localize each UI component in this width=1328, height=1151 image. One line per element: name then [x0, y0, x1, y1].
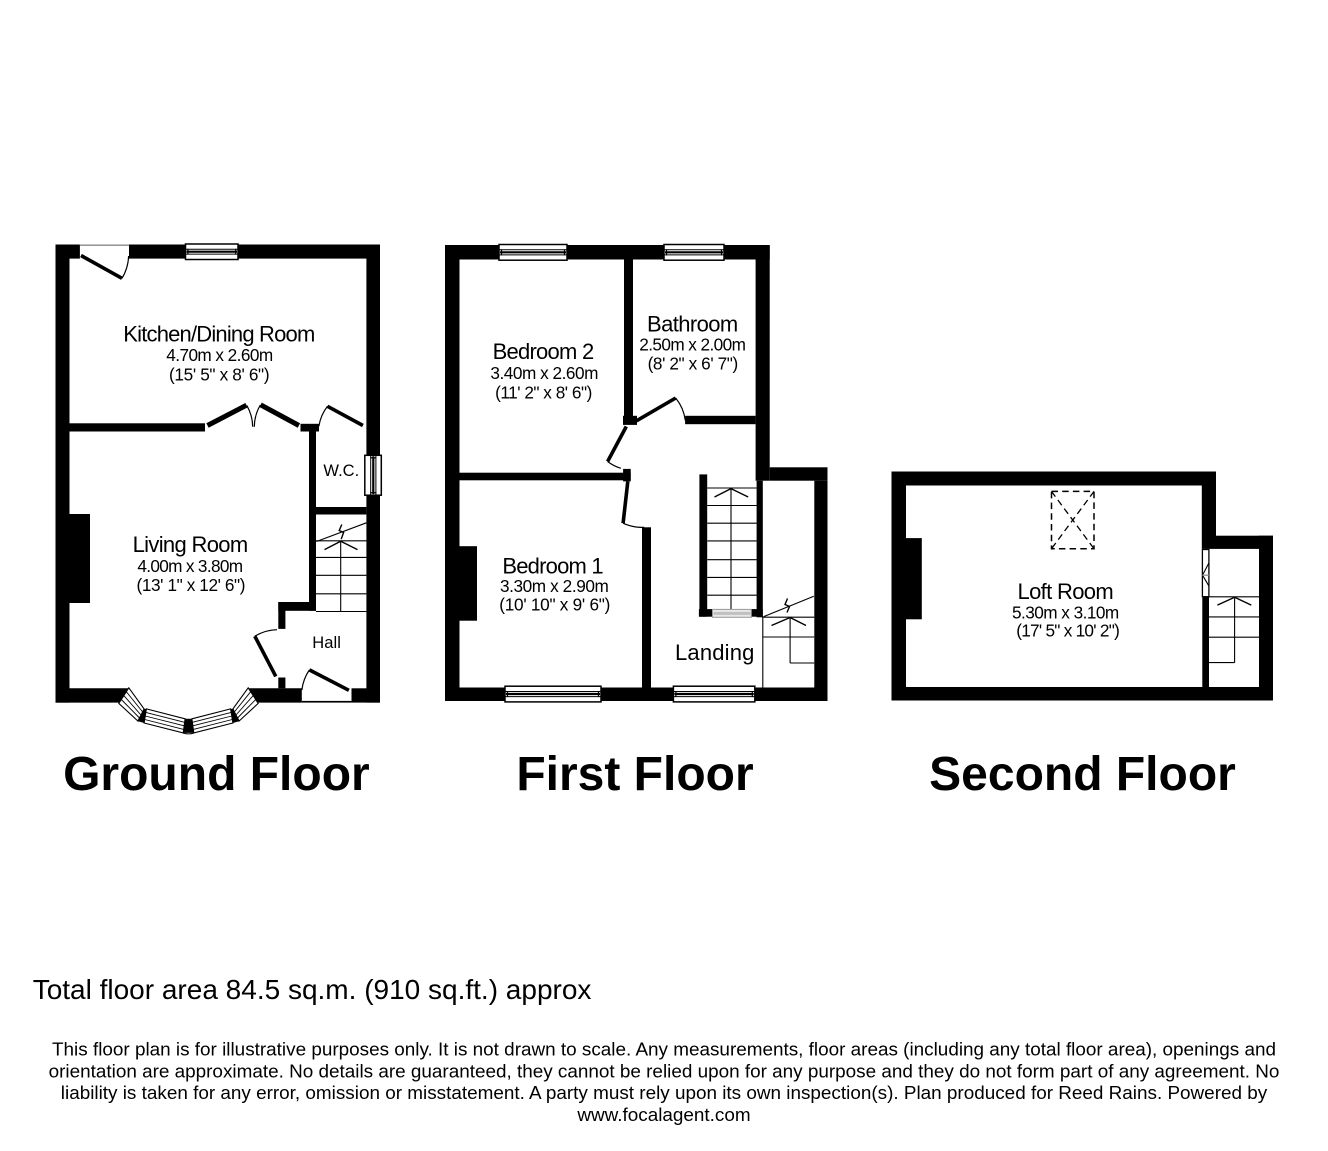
svg-text:Bedroom 1: Bedroom 1 [502, 554, 603, 579]
svg-text:First Floor: First Floor [516, 748, 753, 801]
svg-text:orientation are approximate. N: orientation are approximate. No details … [49, 1061, 1280, 1082]
svg-text:4.00m x 3.80m: 4.00m x 3.80m [137, 556, 243, 576]
svg-text:Kitchen/Dining Room: Kitchen/Dining Room [123, 322, 315, 347]
svg-text:Bathroom: Bathroom [647, 311, 738, 336]
svg-text:W.C.: W.C. [323, 462, 359, 480]
svg-text:This floor plan is for illustr: This floor plan is for illustrative purp… [52, 1040, 1276, 1061]
svg-text:2.50m x 2.00m: 2.50m x 2.00m [639, 335, 746, 355]
svg-text:Ground Floor: Ground Floor [63, 748, 370, 801]
svg-text:(11' 2" x 8' 6"): (11' 2" x 8' 6") [495, 383, 592, 403]
svg-text:liability is taken for any err: liability is taken for any error, omissi… [61, 1083, 1268, 1104]
svg-text:4.70m x 2.60m: 4.70m x 2.60m [166, 345, 273, 365]
svg-text:Loft Room: Loft Room [1018, 579, 1114, 604]
svg-text:(15' 5" x 8' 6"): (15' 5" x 8' 6") [169, 365, 269, 385]
svg-text:(17' 5" x 10' 2"): (17' 5" x 10' 2") [1016, 620, 1120, 640]
svg-text:Second Floor: Second Floor [929, 748, 1236, 801]
svg-text:(10' 10" x 9' 6"): (10' 10" x 9' 6") [499, 594, 610, 614]
svg-text:www.focalagent.com: www.focalagent.com [576, 1105, 750, 1126]
svg-text:Landing: Landing [675, 640, 754, 665]
svg-text:3.30m x 2.90m: 3.30m x 2.90m [500, 576, 609, 596]
svg-text:Living Room: Living Room [133, 532, 249, 557]
svg-text:3.40m x 2.60m: 3.40m x 2.60m [490, 363, 598, 383]
svg-text:(8' 2" x 6' 7"): (8' 2" x 6' 7") [648, 353, 739, 373]
svg-text:5.30m x 3.10m: 5.30m x 3.10m [1012, 602, 1119, 622]
svg-text:Hall: Hall [312, 634, 341, 652]
svg-text:(13' 1" x 12' 6"): (13' 1" x 12' 6") [137, 575, 246, 595]
svg-text:Bedroom 2: Bedroom 2 [493, 339, 595, 364]
svg-text:Total floor area 84.5 sq.m. (9: Total floor area 84.5 sq.m. (910 sq.ft.)… [33, 974, 592, 1005]
